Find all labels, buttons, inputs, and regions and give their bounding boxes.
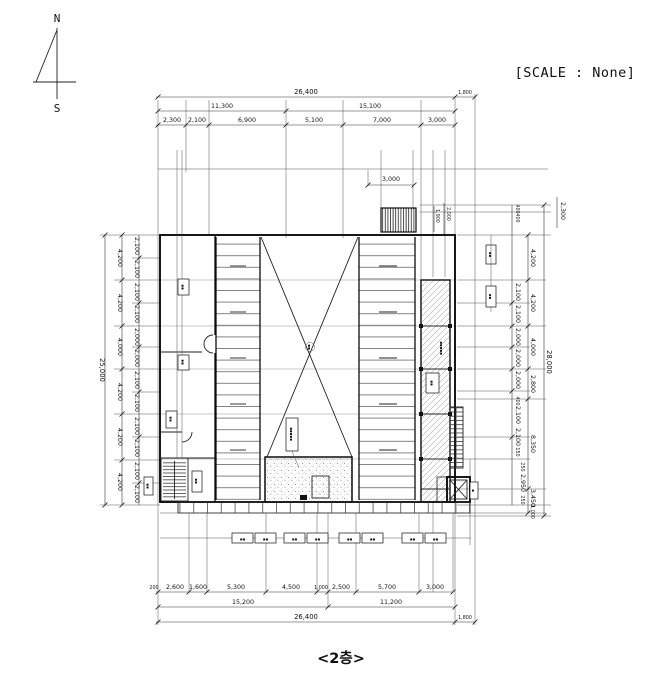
dim-bot-row1-3: 5,300 <box>227 584 245 591</box>
door-swing-small <box>182 432 192 442</box>
dim-left-inner-10: 2,100 <box>133 462 140 480</box>
bottom-edge-strip <box>160 502 470 513</box>
dim-bot-row1-0: 200 <box>149 585 158 591</box>
left-dimensions: 25,000 4,200 4,200 4,000 4,200 4,200 4,2… <box>98 233 160 508</box>
entrance-porch <box>265 457 352 502</box>
note-vertical-1: ▪▪▪▪▪ <box>439 341 444 355</box>
dim-right-total: 28,000 <box>545 350 553 374</box>
dim-left-mid-0: 4,200 <box>116 249 123 267</box>
right-parking-strip <box>359 237 415 500</box>
floor-plan-canvas: N S [SCALE : None] 26,400 1,800 11,300 1… <box>0 0 662 700</box>
dim-right-inner-10: 150 <box>514 447 520 456</box>
dim-right-inner-9: 2,100 <box>514 428 521 446</box>
door-swing-left <box>204 335 213 353</box>
dim-left-inner-0: 2,100 <box>133 237 140 255</box>
dim-top-row3-4: 7,000 <box>373 117 391 124</box>
bottom-tag-3a: ▪▪ <box>347 537 353 542</box>
exterior-tag-1: ▪▪ <box>488 252 493 258</box>
elevator-tag: ▪ <box>471 489 476 492</box>
bottom-tag-4b: ▪▪ <box>433 537 439 542</box>
dim-left-mid-5: 4,200 <box>116 473 123 491</box>
compass-north-arrow: N S <box>33 12 76 115</box>
dim-right-top: 2,300 <box>559 202 566 220</box>
room-tag-3: ▪▪ <box>169 416 174 422</box>
dim-top-row3-2: 6,900 <box>238 117 256 124</box>
center-note-tag: ▪▪▪▪▪ <box>289 427 294 441</box>
bottom-dimensions: 200 2,600 1,600 5,300 4,500 1,000 2,500 … <box>149 584 477 625</box>
dim-left-inner-8: 2,100 <box>133 417 140 435</box>
room-tag-4: ▪▪ <box>194 478 199 484</box>
dim-right-inner-7: 400 <box>514 396 520 405</box>
dim-left-inner-7: 2,100 <box>133 394 140 412</box>
dim-left-inner-4: 2,000 <box>133 328 140 346</box>
elevator-bottom-right <box>437 477 470 502</box>
dim-left-mid-1: 4,200 <box>116 294 123 312</box>
dim-right-inner-12: 2,950 <box>519 474 526 492</box>
dim-left-mid-3: 4,200 <box>116 383 123 401</box>
dim-bot-row2-0: 15,200 <box>232 599 254 606</box>
dim-bot-total: 26,400 <box>294 613 318 621</box>
exterior-tag-2: ▪▪ <box>488 294 493 300</box>
scale-note: [SCALE : None] <box>515 65 636 81</box>
dim-right-mid-3: 2,800 <box>529 375 536 393</box>
dim-top-row3-5: 3,000 <box>428 117 446 124</box>
dim-top-row2-0: 11,300 <box>211 103 233 110</box>
dim-bot-row1-4: 4,500 <box>282 584 300 591</box>
room-tag-2: ▪▪ <box>181 359 186 365</box>
dim-left-inner-9: 2,100 <box>133 439 140 457</box>
stair-right-narrow <box>450 407 463 468</box>
stair-bottom-left <box>161 458 188 501</box>
dim-right-mid-6: 1,000 <box>529 505 535 519</box>
dim-bot-row2-1: 11,200 <box>380 599 402 606</box>
dim-louver-side-0: 1,900 <box>434 209 440 223</box>
dim-top-offset: 1,800 <box>458 90 472 96</box>
dim-bot-row1-6: 2,500 <box>332 584 350 591</box>
dim-left-inner-3: 2,100 <box>133 305 140 323</box>
room-tag-6: ▪▪ <box>430 380 435 386</box>
dim-bot-row1-5: 1,000 <box>314 585 328 591</box>
drawing-title: <2층> <box>317 650 365 667</box>
dim-right-inner-13: 250 <box>519 495 525 504</box>
dim-bot-row1-7: 5,700 <box>378 584 396 591</box>
left-parking-strip <box>216 237 260 500</box>
dim-left-inner-6: 2,100 <box>133 371 140 389</box>
louver-vent <box>381 208 416 232</box>
dim-top-total: 26,400 <box>294 88 318 96</box>
dim-top-row2-1: 15,100 <box>359 103 381 110</box>
dim-top-row3-3: 5,100 <box>305 117 323 124</box>
dim-left-inner-11: 2,100 <box>133 485 140 503</box>
dim-right-inner-2: 2,100 <box>514 283 521 301</box>
room-tag-5: ▪▪ <box>146 483 151 489</box>
dim-left-total: 25,000 <box>98 358 106 382</box>
dim-left-mid-2: 4,000 <box>116 338 123 356</box>
dim-right-inner-3: 2,100 <box>514 305 521 323</box>
void-center-glyph: ▪▪ <box>307 344 312 350</box>
room-tag-1: ▪▪ <box>181 284 186 290</box>
central-void: ▪▪ <box>261 237 358 457</box>
dim-bot-offset: 1,800 <box>458 615 472 621</box>
dim-top-row3-0: 2,300 <box>163 117 181 124</box>
bottom-tag-1b: ▪▪ <box>263 537 269 542</box>
dim-left-mid-4: 4,200 <box>116 428 123 446</box>
dim-right-inner-8: 2,100 <box>514 406 521 424</box>
dim-right-inner-0: 400 <box>514 204 520 213</box>
compass-south-label: S <box>54 102 61 115</box>
dim-bot-row1-8: 3,000 <box>426 584 444 591</box>
dim-left-inner-1: 2,100 <box>133 260 140 278</box>
bottom-tag-3b: ▪▪ <box>370 537 376 542</box>
dim-right-mid-1: 4,200 <box>529 294 536 312</box>
top-dimensions: 26,400 1,800 11,300 15,100 2,300 2,100 6… <box>156 88 478 236</box>
bottom-tag-1a: ▪▪ <box>240 537 246 542</box>
note-vertical-2: ▪▪▪▪▪ <box>453 344 458 358</box>
floor-plan-drawing-page: N S [SCALE : None] 26,400 1,800 11,300 1… <box>0 0 662 700</box>
dim-left-inner-5: 2,000 <box>133 349 140 367</box>
compass-north-label: N <box>54 12 61 25</box>
dim-louver-width: 3,000 <box>382 176 400 183</box>
bottom-tag-4a: ▪▪ <box>410 537 416 542</box>
dim-right-inner-11: 250 <box>519 462 525 471</box>
bottom-tag-2a: ▪▪ <box>292 537 298 542</box>
bottom-tag-2b: ▪▪ <box>315 537 321 542</box>
dim-right-mid-4: 8,350 <box>529 435 536 453</box>
dim-right-inner-6: 2,000 <box>514 371 521 389</box>
dim-bot-row1-1: 2,600 <box>166 584 184 591</box>
dim-right-mid-2: 4,000 <box>529 338 536 356</box>
dim-left-inner-2: 2,100 <box>133 283 140 301</box>
dim-louver-side-1: 2,000 <box>445 207 451 221</box>
right-dimensions: 28,000 2,300 4,200 4,200 4,000 2,800 8,3… <box>457 197 566 519</box>
dim-right-inner-4: 2,000 <box>514 328 521 346</box>
dim-right-mid-0: 4,200 <box>529 249 536 267</box>
dim-bot-row1-2: 1,600 <box>189 584 207 591</box>
dim-top-row3-1: 2,100 <box>188 117 206 124</box>
dim-right-inner-1: 400 <box>514 213 520 222</box>
dim-right-inner-5: 2,000 <box>514 349 521 367</box>
